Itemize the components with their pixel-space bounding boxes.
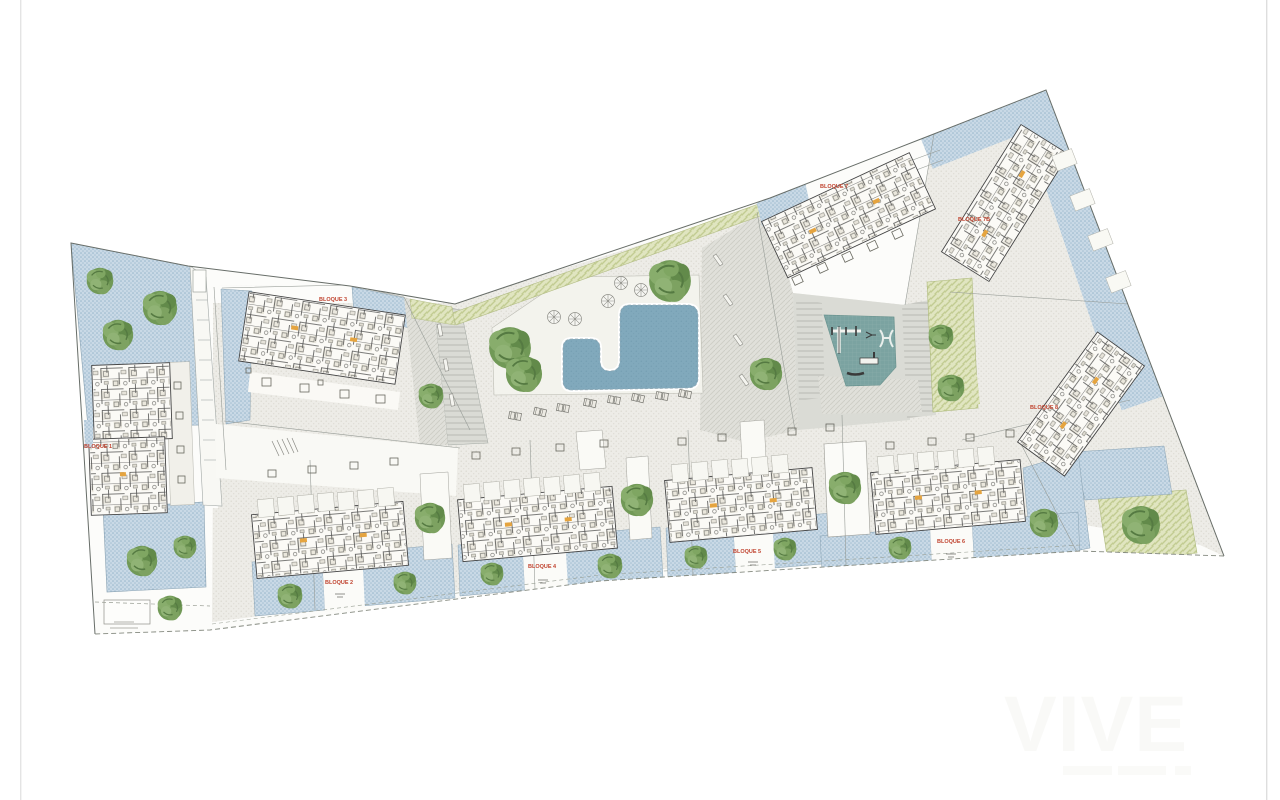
svg-text:BLOQUE 7: BLOQUE 7: [820, 184, 848, 190]
svg-text:BLOQUE 3: BLOQUE 3: [319, 297, 347, 303]
svg-text:BLOQUE 2: BLOQUE 2: [325, 580, 353, 586]
svg-text:BLOQUE 7B: BLOQUE 7B: [958, 217, 990, 223]
svg-text:VIVE: VIVE: [1004, 679, 1188, 768]
svg-text:BLOQUE 8: BLOQUE 8: [1030, 405, 1058, 411]
svg-text:BLOQUE 1: BLOQUE 1: [84, 444, 112, 450]
svg-text:BLOQUE 6: BLOQUE 6: [937, 539, 965, 545]
svg-text:BLOQUE 5: BLOQUE 5: [733, 549, 761, 555]
svg-text:BLOQUE 4: BLOQUE 4: [528, 564, 557, 570]
